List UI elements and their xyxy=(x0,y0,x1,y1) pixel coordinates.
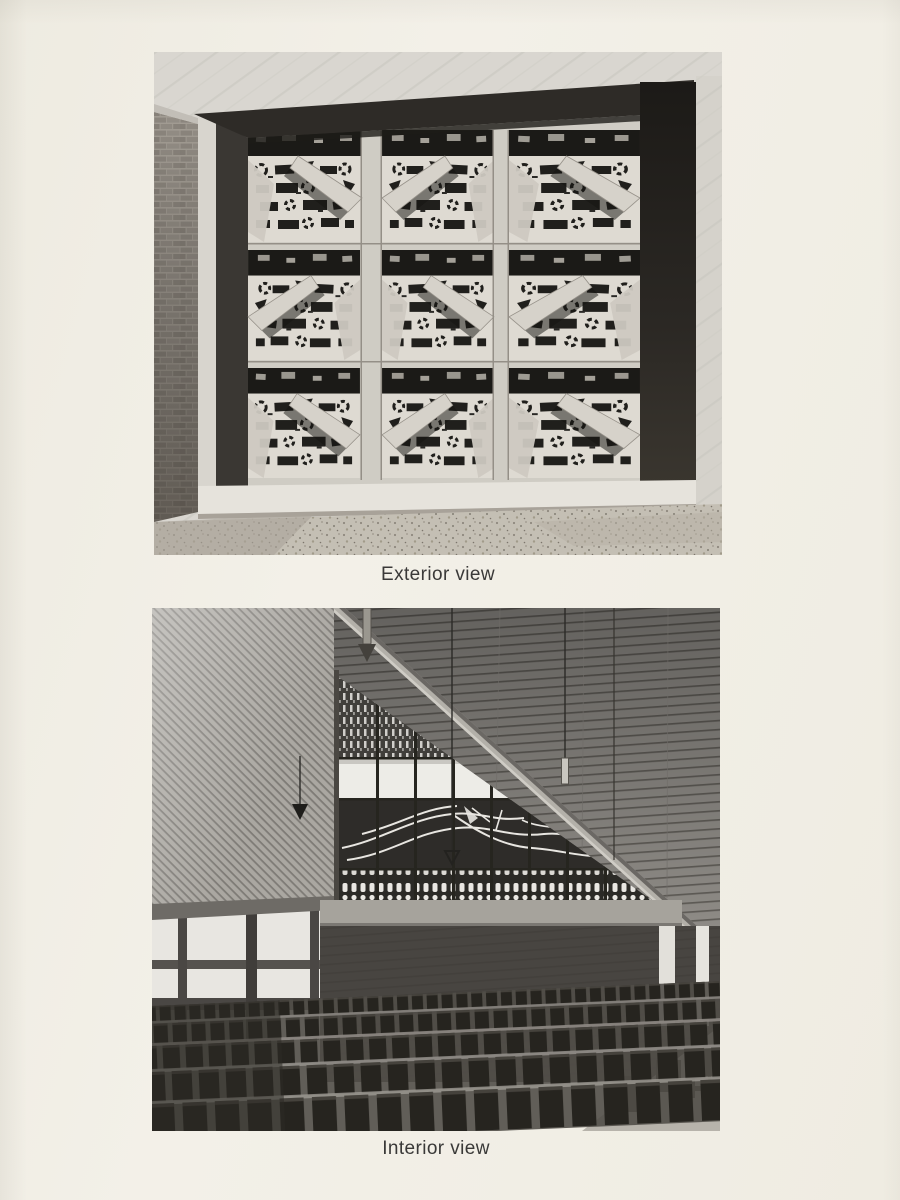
interior-photo-svg xyxy=(152,608,720,1131)
brick-pier xyxy=(154,104,198,522)
interior-caption: Interior view xyxy=(152,1138,720,1160)
exterior-caption: Exterior view xyxy=(154,564,722,586)
corner-pilaster xyxy=(198,118,216,490)
concrete-screen xyxy=(248,120,640,486)
diagonal-board-wall xyxy=(152,608,334,946)
exterior-photo xyxy=(154,52,722,555)
transom-band xyxy=(320,900,682,927)
sill-and-ground xyxy=(154,480,722,555)
interior-photo xyxy=(152,608,720,1131)
window-jamb xyxy=(216,122,248,490)
chair-rows xyxy=(152,980,720,1131)
shadow-recess xyxy=(640,82,696,486)
exterior-photo-svg xyxy=(154,52,722,555)
book-page: Exterior view xyxy=(0,0,900,1200)
right-marble-texture xyxy=(696,76,722,555)
